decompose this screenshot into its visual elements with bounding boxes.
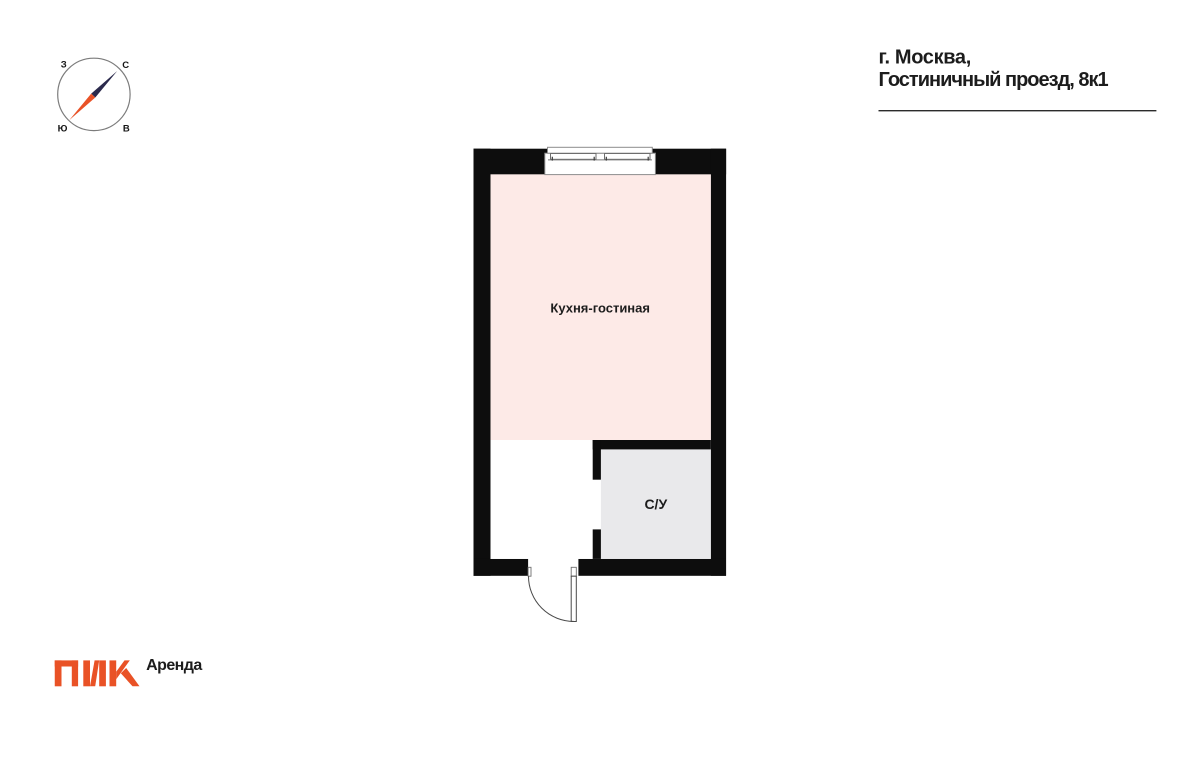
svg-text:С: С: [122, 60, 129, 71]
svg-text:г. Москва,: г. Москва,: [879, 46, 971, 68]
svg-text:В: В: [123, 123, 130, 134]
svg-text:Ю: Ю: [58, 124, 68, 135]
svg-text:С/У: С/У: [644, 496, 667, 512]
svg-text:Аренда: Аренда: [146, 657, 202, 674]
svg-text:Гостиничный проезд, 8к1: Гостиничный проезд, 8к1: [879, 69, 1109, 91]
svg-text:Кухня-гостиная: Кухня-гостиная: [550, 301, 650, 316]
svg-text:З: З: [61, 60, 67, 71]
